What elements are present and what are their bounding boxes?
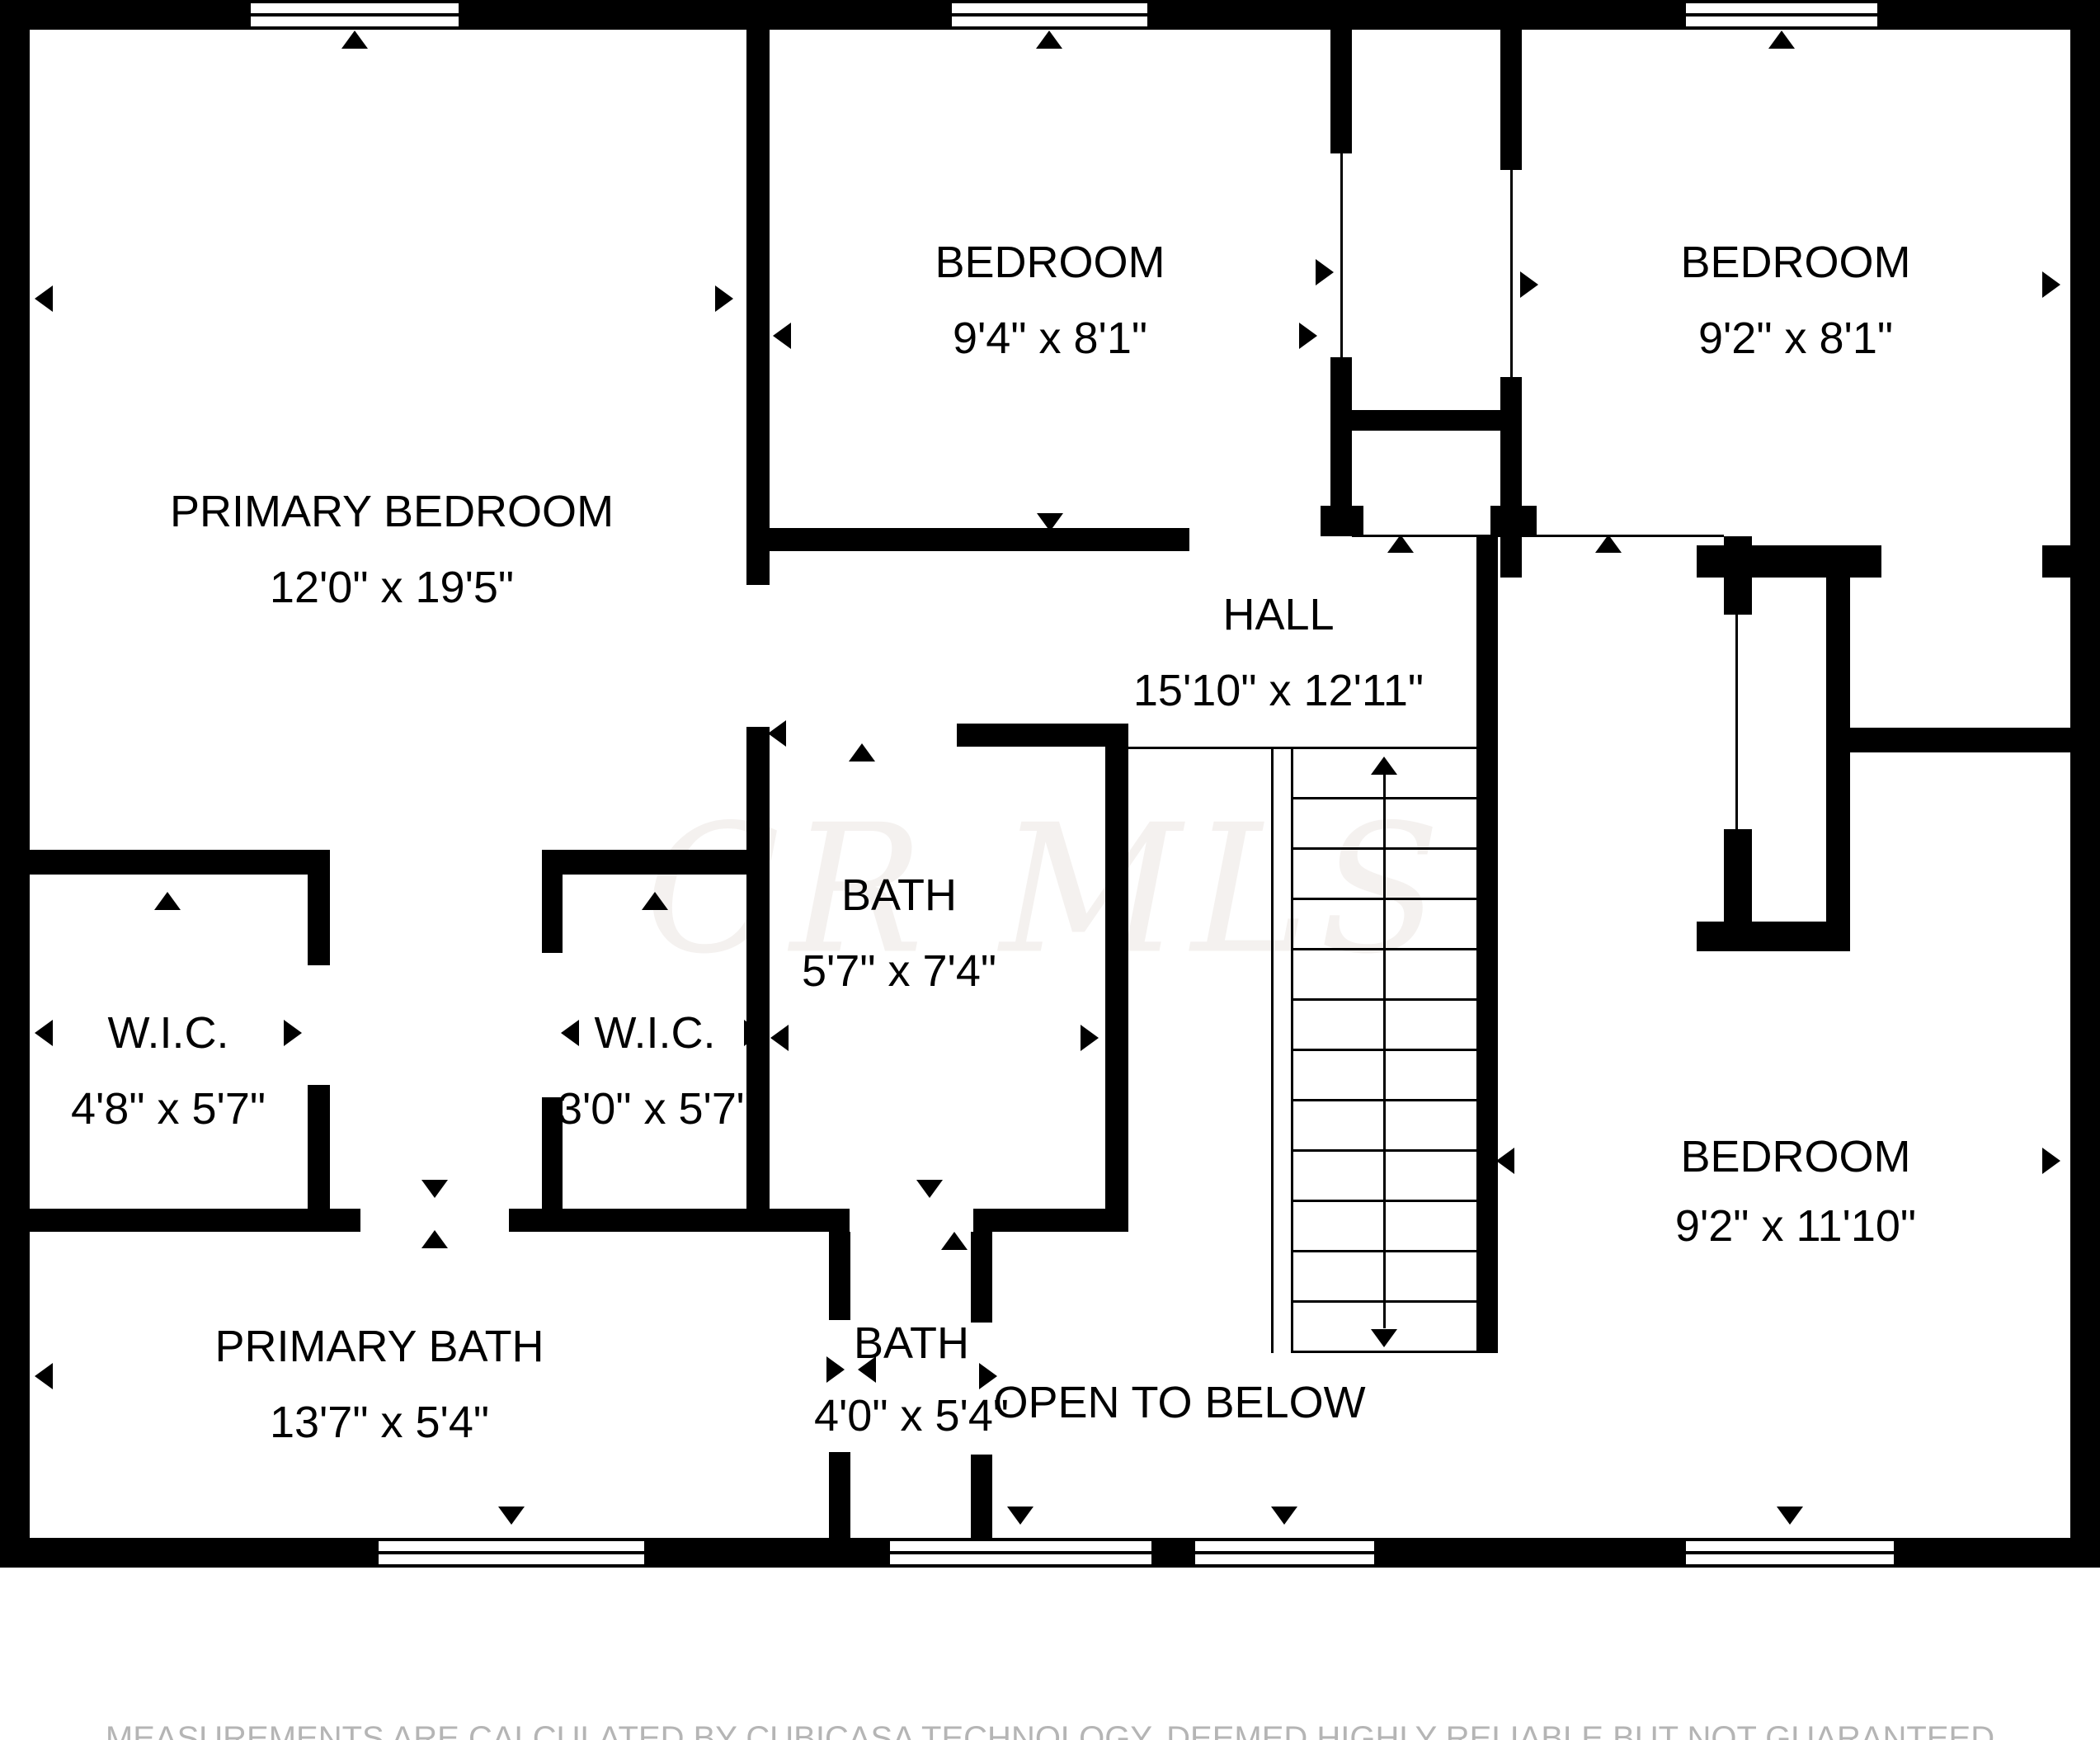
room-dims-wic-right: 3'0" x 5'7" bbox=[558, 1083, 752, 1134]
wall bbox=[1724, 829, 1752, 922]
door-leaf-line bbox=[1510, 170, 1513, 377]
wall bbox=[308, 1085, 330, 1209]
room-dims-primary-bedroom: 12'0" x 19'5" bbox=[270, 562, 514, 613]
wall bbox=[1330, 30, 1352, 153]
window-marker-icon bbox=[498, 1507, 525, 1525]
dimension-arrow-icon bbox=[35, 1020, 53, 1046]
room-label-hall: HALL bbox=[1222, 589, 1334, 640]
window-marker-icon bbox=[1036, 31, 1062, 49]
wall bbox=[829, 1452, 850, 1538]
room-dims-bedroom-right: 9'2" x 8'1" bbox=[1698, 313, 1893, 364]
dimension-arrow-icon bbox=[35, 285, 53, 312]
wall bbox=[971, 1232, 992, 1323]
room-label-bath: BATH bbox=[841, 870, 957, 921]
door-arrow-icon bbox=[1595, 535, 1622, 553]
window-marker-icon bbox=[1007, 1507, 1034, 1525]
room-dims-wic-left: 4'8" x 5'7" bbox=[71, 1083, 266, 1134]
wall bbox=[746, 30, 770, 585]
wall bbox=[1321, 506, 1363, 536]
door-leaf-line bbox=[1735, 615, 1738, 829]
wall bbox=[746, 528, 1189, 551]
stairs-down-arrow-icon bbox=[1371, 1329, 1397, 1347]
room-dims-bedroom-middle: 9'4" x 8'1" bbox=[953, 313, 1147, 364]
window-marker-icon bbox=[1777, 1507, 1803, 1525]
wall bbox=[1848, 728, 2070, 752]
wall-bath-top bbox=[957, 724, 1105, 747]
window bbox=[247, 0, 462, 30]
door-arrow-icon bbox=[768, 720, 786, 747]
room-label-bath-small: BATH bbox=[854, 1318, 969, 1369]
door-leaf-line bbox=[1340, 153, 1343, 357]
window bbox=[887, 1538, 1155, 1568]
room-label-primary-bedroom: PRIMARY BEDROOM bbox=[170, 486, 614, 537]
door-arrow-icon bbox=[1316, 259, 1334, 285]
wall bbox=[971, 1455, 992, 1538]
dimension-arrow-icon bbox=[715, 285, 733, 312]
wall bbox=[829, 1232, 850, 1320]
window-marker-icon bbox=[1768, 31, 1795, 49]
door-arrow-icon bbox=[826, 1356, 845, 1383]
dimension-arrow-icon bbox=[744, 1020, 762, 1046]
dimension-arrow-icon bbox=[284, 1020, 302, 1046]
stair-rail-line bbox=[1271, 747, 1274, 1353]
door-arrow-icon bbox=[421, 1230, 448, 1248]
disclaimer: MEASUREMENTS ARE CALCULATED BY CUBICASA … bbox=[106, 1720, 1994, 1740]
room-dims-primary-bath: 13'7" x 5'4" bbox=[270, 1397, 489, 1448]
wall bbox=[30, 1209, 360, 1232]
wall-exterior-right bbox=[2070, 0, 2100, 1568]
wall bbox=[1697, 922, 1850, 951]
wall-wic-right-top bbox=[542, 850, 768, 875]
wall bbox=[2042, 545, 2070, 578]
stairs-direction-arrow bbox=[1383, 771, 1386, 1328]
dimension-arrow-icon bbox=[561, 1020, 579, 1046]
wall bbox=[308, 875, 330, 965]
door-arrow-icon bbox=[1387, 535, 1414, 553]
door-arrow-icon bbox=[941, 1232, 968, 1250]
wall-exterior-left bbox=[0, 0, 30, 1568]
room-label-primary-bath: PRIMARY BATH bbox=[214, 1321, 544, 1372]
dimension-arrow-icon bbox=[1081, 1025, 1099, 1051]
room-label-bedroom-bottom: BEDROOM bbox=[1680, 1131, 1910, 1182]
door-arrow-icon bbox=[1520, 271, 1538, 298]
door-arrow-icon bbox=[642, 892, 668, 910]
dimension-arrow-icon bbox=[2042, 1148, 2060, 1174]
room-label-wic-right: W.I.C. bbox=[595, 1007, 716, 1059]
wall bbox=[1697, 545, 1881, 578]
window bbox=[1192, 1538, 1377, 1568]
wall bbox=[973, 1209, 1128, 1232]
wall bbox=[1500, 377, 1522, 578]
window-marker-icon bbox=[341, 31, 368, 49]
wall-wic-left-top bbox=[30, 850, 330, 875]
window bbox=[949, 0, 1151, 30]
wall bbox=[1330, 357, 1352, 506]
dimension-arrow-icon bbox=[1496, 1148, 1514, 1174]
wall bbox=[1352, 410, 1500, 431]
window bbox=[1683, 1538, 1897, 1568]
stairs-up-arrow-icon bbox=[1371, 757, 1397, 775]
dimension-arrow-icon bbox=[1299, 323, 1317, 349]
room-label-wic-left: W.I.C. bbox=[108, 1007, 229, 1059]
dimension-arrow-icon bbox=[773, 323, 791, 349]
door-arrow-icon bbox=[1037, 513, 1063, 531]
window bbox=[1683, 0, 1881, 30]
window bbox=[375, 1538, 647, 1568]
dimension-arrow-icon bbox=[770, 1025, 789, 1051]
dimension-arrow-icon bbox=[2042, 271, 2060, 298]
floor-plan: CR MLS bbox=[0, 0, 2100, 1740]
wall bbox=[542, 875, 563, 953]
door-arrow-icon bbox=[916, 1180, 943, 1198]
room-label-bedroom-middle: BEDROOM bbox=[935, 237, 1165, 288]
window-marker-icon bbox=[1271, 1507, 1297, 1525]
stair-rail-line bbox=[1127, 747, 1293, 749]
room-label-open-to-below: OPEN TO BELOW bbox=[993, 1377, 1365, 1428]
room-dims-bath: 5'7" x 7'4" bbox=[802, 945, 996, 997]
wall bbox=[1826, 563, 1850, 922]
door-arrow-icon bbox=[154, 892, 181, 910]
wall bbox=[509, 1209, 850, 1232]
wall bbox=[746, 727, 770, 1232]
room-dims-bedroom-bottom: 9'2" x 11'10" bbox=[1675, 1200, 1916, 1252]
door-arrow-icon bbox=[849, 743, 875, 762]
wall-bath-right bbox=[1105, 724, 1128, 1232]
room-label-bedroom-right: BEDROOM bbox=[1680, 237, 1910, 288]
wall-stairwell-right bbox=[1476, 536, 1498, 1353]
dimension-arrow-icon bbox=[35, 1363, 53, 1389]
wall bbox=[1500, 30, 1522, 170]
door-arrow-icon bbox=[421, 1180, 448, 1198]
wall bbox=[1490, 506, 1537, 536]
room-dims-bath-small: 4'0" x 5'4" bbox=[814, 1390, 1009, 1441]
room-dims-hall: 15'10" x 12'11" bbox=[1133, 665, 1424, 716]
